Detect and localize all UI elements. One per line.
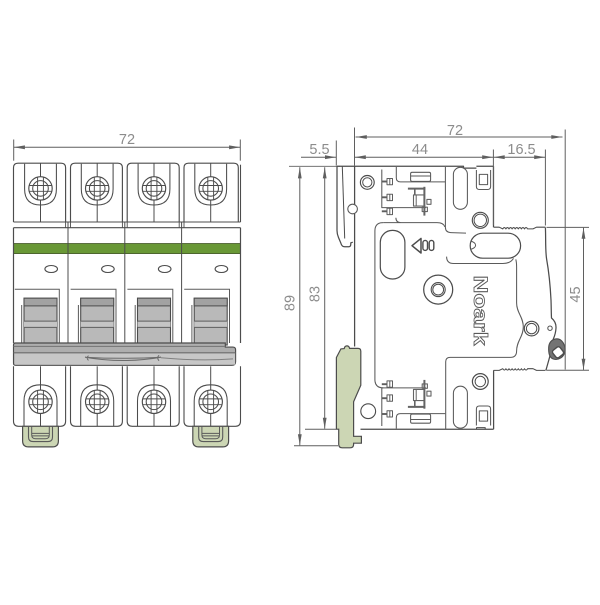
svg-text:89: 89: [283, 295, 299, 311]
svg-text:83: 83: [308, 286, 324, 302]
svg-text:72: 72: [447, 123, 463, 139]
svg-text:16.5: 16.5: [507, 142, 535, 158]
svg-text:5.5: 5.5: [309, 142, 329, 158]
svg-text:44: 44: [412, 142, 428, 158]
svg-text:72: 72: [119, 132, 135, 148]
svg-text:Noark: Noark: [469, 276, 490, 347]
svg-text:45: 45: [568, 286, 584, 302]
